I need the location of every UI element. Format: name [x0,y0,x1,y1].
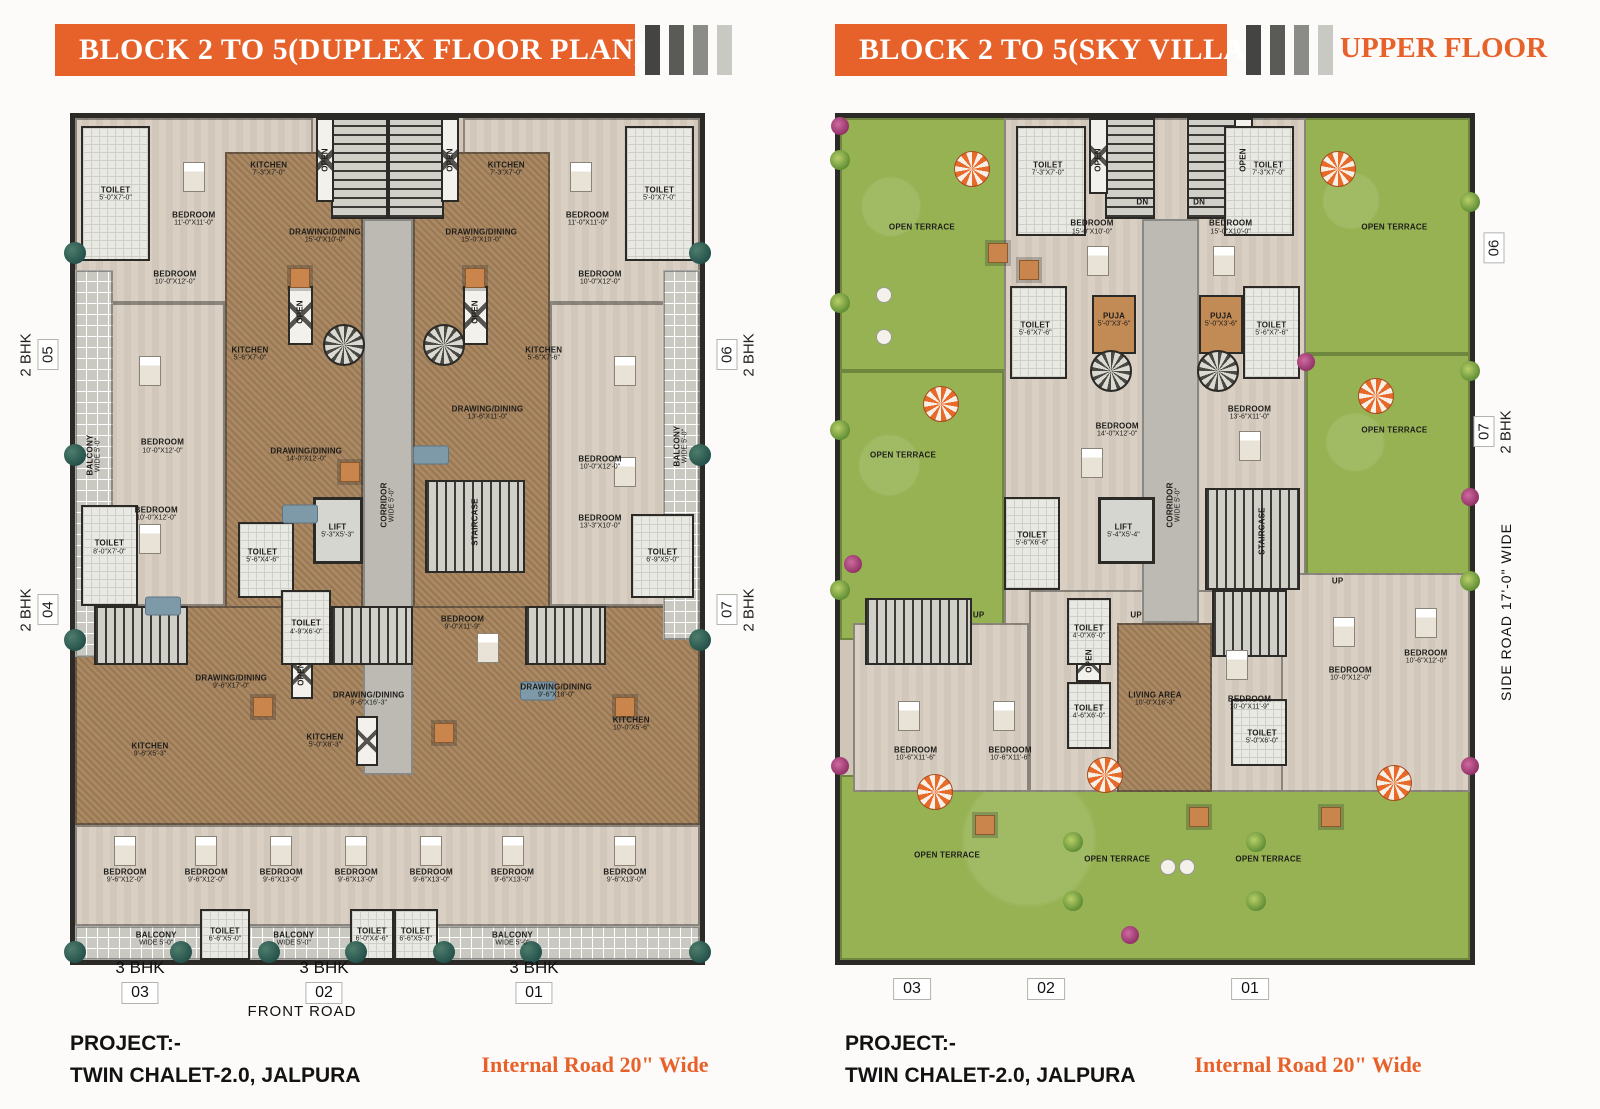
bed-icon [614,457,636,487]
project-name: TWIN CHALET-2.0, JALPURA [70,1060,361,1092]
unit-bhk: 2 BHK [18,333,35,376]
sofa-icon [282,504,318,523]
unit-label-02: 3 BHK 02 [299,958,348,1004]
unit-bhk: 2 BHK [18,588,35,631]
zone-stairs-v [388,118,444,219]
bed-icon [1213,246,1235,276]
zone-lift [1098,497,1155,564]
bed-icon [195,836,217,866]
palm-icon [1246,891,1266,911]
zone-tile [200,909,250,960]
zone-puja [1092,295,1136,354]
bush-icon [831,117,849,135]
project-label: PROJECT:- [70,1028,361,1060]
unit-number: 06 [1484,233,1505,264]
bed-icon [420,836,442,866]
tree-icon [689,242,711,264]
unit-number: 03 [121,982,159,1004]
unit-label-06: 06 [1484,233,1505,264]
right-plan-title: BLOCK 2 TO 5(SKY VILLA) [859,33,1256,67]
unit-bhk: 3 BHK [299,958,348,978]
unit-number: 02 [1027,978,1065,1000]
zone-shaft [1089,118,1108,194]
bed-icon [345,836,367,866]
sofa-icon [520,681,556,700]
bed-icon [1239,431,1261,461]
palm-icon [1063,832,1083,852]
right-legend-bars-icon [1246,25,1333,75]
table-icon [615,697,635,717]
spiral-icon [1197,350,1239,392]
front-road-label: FRONT ROAD [248,1003,357,1020]
legend-bar-icon [1294,25,1309,75]
bed-icon [898,701,920,731]
zone-shaft [463,286,488,345]
zone-tile [1010,286,1067,379]
umbrella-icon [1376,765,1412,801]
tree-icon [64,629,86,651]
zone-stairs-h [1205,488,1300,589]
bed-icon [1415,608,1437,638]
spiral-icon [323,324,365,366]
table-icon [1189,807,1209,827]
unit-label-06: 06 2 BHK [717,333,758,376]
umbrella-icon [1087,757,1123,793]
bed-icon [502,836,524,866]
bush-icon [831,757,849,775]
unit-bhk: 3 BHK [509,958,558,978]
left-project-block: PROJECT:- TWIN CHALET-2.0, JALPURA [70,1028,361,1091]
table-icon [434,723,454,743]
zone-tile [1067,598,1111,665]
unit-bhk: 3 BHK [115,958,164,978]
zone-stairs-h [331,606,412,665]
project-label: PROJECT:- [845,1028,1136,1060]
zone-tile [1004,497,1061,590]
unit-label-07: 07 2 BHK [717,588,758,631]
skyvilla-plan: OPEN TERRACETOILET7'-3"X7'-0"OPENDNDNOPE… [835,113,1475,965]
tree-icon [170,941,192,963]
zone-stairs-h [865,598,972,665]
chair-icon [876,287,892,303]
tree-icon [689,444,711,466]
palm-icon [830,580,850,600]
chair-icon [876,329,892,345]
left-plan-title-banner: BLOCK 2 TO 5(DUPLEX FLOOR PLAN) [55,24,635,76]
unit-label-04: 2 BHK 04 [18,588,59,631]
bed-icon [993,701,1015,731]
zone-tile [1067,682,1111,749]
unit-label-03: 03 [893,978,931,1000]
table-icon [253,697,273,717]
project-name: TWIN CHALET-2.0, JALPURA [845,1060,1136,1092]
bush-icon [1461,488,1479,506]
legend-bar-icon [1246,25,1261,75]
unit-number: 06 [717,340,738,371]
left-legend-bars-icon [645,25,732,75]
bush-icon [1297,353,1315,371]
bush-icon [844,555,862,573]
umbrella-icon [954,151,990,187]
legend-bar-icon [1318,25,1333,75]
bed-icon [114,836,136,866]
zone-stairs-h [525,606,606,665]
zone-terrace [1300,118,1470,354]
zone-stairs-h [425,480,525,573]
right-project-block: PROJECT:- TWIN CHALET-2.0, JALPURA [845,1028,1136,1091]
unit-number: 01 [1231,978,1269,1000]
unit-number: 05 [38,340,59,371]
palm-icon [830,293,850,313]
zone-tile [1243,286,1300,379]
unit-label-01: 3 BHK 01 [509,958,558,1004]
bed-icon [183,162,205,192]
unit-number: 02 [305,982,343,1004]
legend-bar-icon [693,25,708,75]
table-icon [1321,807,1341,827]
unit-number: 01 [515,982,553,1004]
chair-icon [1179,859,1195,875]
umbrella-icon [1320,151,1356,187]
palm-icon [1460,192,1480,212]
legend-bar-icon [669,25,684,75]
unit-bhk: 2 BHK [741,588,758,631]
unit-number: 07 [1474,417,1495,448]
table-icon [290,268,310,288]
right-plan-title-banner: BLOCK 2 TO 5(SKY VILLA) [835,24,1227,76]
bed-icon [270,836,292,866]
chair-icon [1160,859,1176,875]
zone-wood [1281,573,1470,792]
upper-floor-tag: UPPER FLOOR [1340,32,1547,65]
bed-icon [477,633,499,663]
zone-tile [1224,126,1293,235]
table-icon [988,243,1008,263]
umbrella-icon [1358,378,1394,414]
bush-icon [1461,757,1479,775]
unit-label-03: 3 BHK 03 [115,958,164,1004]
spiral-icon [1090,350,1132,392]
zone-shaft [316,118,335,202]
tree-icon [689,629,711,651]
tree-icon [689,941,711,963]
tree-icon [64,941,86,963]
zone-tile [631,514,694,598]
tree-icon [64,444,86,466]
unit-bhk: 2 BHK [741,333,758,376]
umbrella-icon [923,386,959,422]
bed-icon [139,356,161,386]
zone-corridor [363,219,413,775]
unit-number: 04 [38,595,59,626]
tree-icon [64,242,86,264]
zone-tile [81,505,137,606]
table-icon [465,268,485,288]
sofa-icon [145,597,181,616]
side-road-label: SIDE ROAD 17'-0" WIDE [1498,523,1514,701]
unit-number: 07 [717,595,738,626]
zone-tile [81,126,150,261]
left-plan-title: BLOCK 2 TO 5(DUPLEX FLOOR PLAN) [79,33,644,67]
bed-icon [1333,617,1355,647]
palm-icon [830,420,850,440]
palm-icon [1460,361,1480,381]
right-internal-road-note: Internal Road 20" Wide [1178,1052,1438,1078]
palm-icon [830,150,850,170]
unit-bhk: 2 BHK [1498,410,1515,453]
bed-icon [1226,650,1248,680]
legend-bar-icon [645,25,660,75]
bed-icon [614,836,636,866]
palm-icon [1063,891,1083,911]
duplex-plan: TOILET5'-0"X7'-0"BEDROOM11'-0"X11'-0"KIT… [70,113,705,965]
zone-tile [394,909,438,960]
zone-tile [281,590,331,666]
bed-icon [1087,246,1109,276]
palm-icon [1246,832,1266,852]
zone-stairs-h [1212,590,1288,657]
zone-stairs-v [331,118,387,219]
umbrella-icon [917,774,953,810]
tree-icon [433,941,455,963]
spiral-icon [423,324,465,366]
sofa-icon [413,445,449,464]
tree-icon [258,941,280,963]
bed-icon [139,524,161,554]
unit-label-01: 01 [1231,978,1269,1000]
unit-label-07: 07 2 BHK [1474,410,1515,453]
legend-bar-icon [1270,25,1285,75]
unit-label-05: 2 BHK 05 [18,333,59,376]
zone-lift [313,497,363,564]
zone-puja [1199,295,1243,354]
table-icon [975,815,995,835]
zone-brown [1117,623,1212,791]
zone-tile [625,126,694,261]
zone-stairs-v [1105,118,1155,219]
floor-plan-poster: BLOCK 2 TO 5(DUPLEX FLOOR PLAN) TOILET5'… [0,0,1600,1109]
table-icon [340,462,360,482]
zone-shaft [441,118,460,202]
table-icon [1019,260,1039,280]
bed-icon [1081,448,1103,478]
palm-icon [1460,571,1480,591]
bed-icon [614,356,636,386]
zone-tile [238,522,294,598]
zone-shaft [356,716,378,767]
zone-tile [1016,126,1085,235]
left-internal-road-note: Internal Road 20" Wide [465,1052,725,1078]
unit-number: 03 [893,978,931,1000]
legend-bar-icon [717,25,732,75]
zone-tile [1231,699,1288,766]
unit-label-02: 02 [1027,978,1065,1000]
zone-shaft [288,286,313,345]
bush-icon [1121,926,1139,944]
bed-icon [570,162,592,192]
